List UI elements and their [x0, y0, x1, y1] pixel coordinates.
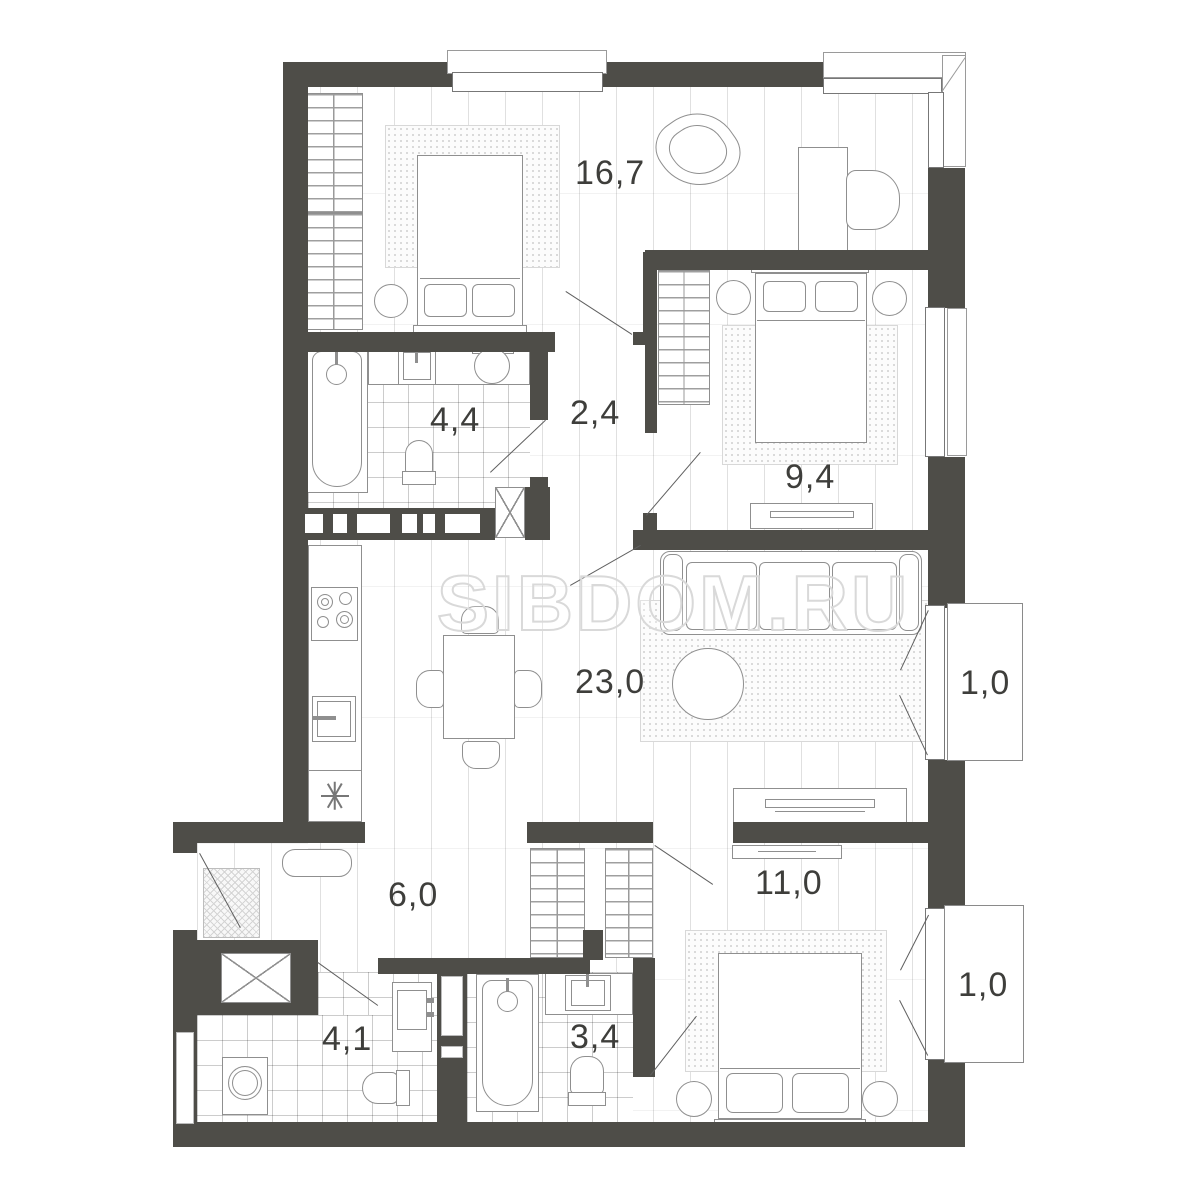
nightstand [872, 281, 907, 316]
wall-segment [633, 958, 655, 1077]
bed-pillow [792, 1073, 849, 1113]
vanity-faucet [426, 1012, 434, 1017]
kitchen-faucet [312, 716, 336, 720]
dining-chair [462, 741, 500, 769]
wardrobe [605, 848, 653, 958]
wall-segment [733, 822, 928, 843]
wardrobe [305, 213, 363, 330]
basin [474, 348, 510, 384]
wardrobe [530, 848, 585, 958]
bed-duvet-line [420, 278, 520, 279]
room-area-label: 23,0 [575, 665, 645, 699]
bathtub-faucet [497, 991, 518, 1012]
room-area-label: 4,1 [322, 1022, 372, 1056]
duct-inset [445, 514, 480, 533]
wall-segment [600, 62, 823, 87]
duct-inset [305, 514, 323, 533]
wall-niche [176, 1032, 194, 1124]
watermark: SIBDOM.RU [437, 558, 910, 649]
wall-segment [173, 822, 197, 853]
room-area-label: 1,0 [960, 666, 1010, 700]
nightstand [862, 1081, 898, 1117]
room-area-label: 3,4 [570, 1020, 620, 1054]
bed-duvet-line [720, 1068, 860, 1069]
room-area-label: 16,7 [575, 156, 645, 190]
stove-burner [339, 592, 352, 605]
nightstand [676, 1081, 712, 1117]
stove-burner [336, 611, 353, 628]
wall-segment [173, 1122, 965, 1147]
balcony-door [925, 908, 945, 1060]
wall-segment [633, 530, 928, 550]
toilet-bowl [362, 1072, 398, 1104]
dining-chair [416, 670, 444, 708]
wall-segment [928, 760, 965, 912]
tv-console-detail [765, 799, 875, 808]
tv-console-line [775, 811, 865, 812]
nightstand [716, 280, 751, 315]
vanity-faucet [426, 998, 434, 1003]
wall-segment [527, 822, 653, 843]
bed-pillow [726, 1073, 783, 1113]
coffee-table [672, 648, 744, 720]
toilet-tank [396, 1070, 410, 1106]
wall-segment [283, 62, 455, 87]
bed-pillow [472, 284, 515, 317]
desk [798, 147, 848, 253]
wall-segment [928, 168, 965, 308]
fridge-snowflake-icon [321, 782, 349, 810]
wardrobe [658, 270, 710, 405]
wall-segment [645, 345, 657, 433]
wall-segment [583, 930, 603, 960]
ventilation-shaft [221, 953, 291, 1003]
wall-segment [645, 250, 928, 270]
wall-segment [530, 345, 548, 420]
toilet-bowl [405, 440, 433, 474]
duct-inset [333, 514, 347, 533]
desk-chair [846, 170, 900, 230]
stove-burner [317, 616, 329, 628]
dresser-line [758, 851, 816, 852]
room-area-label: 6,0 [388, 878, 438, 912]
toilet-tank [402, 471, 436, 485]
sink-faucet [586, 973, 589, 987]
wall-niche [441, 1046, 463, 1058]
wardrobe [305, 93, 363, 213]
wall-segment [378, 958, 590, 974]
bed-pillow [815, 281, 858, 312]
duct-inset [402, 514, 417, 533]
bench [282, 849, 352, 877]
dresser [732, 845, 842, 859]
tv-console-detail [770, 511, 854, 518]
wall-niche [441, 976, 463, 1036]
stove-burner [317, 594, 333, 610]
window-sill [447, 50, 607, 74]
bed-duvet-line [757, 320, 865, 321]
room-area-label: 4,4 [430, 403, 480, 437]
duct-inset [423, 514, 435, 533]
room-area-label: 9,4 [785, 460, 835, 494]
wall-segment [525, 487, 550, 540]
dining-table [443, 635, 515, 739]
bathtub-faucet [326, 364, 347, 385]
window-sill [947, 308, 967, 456]
bed-pillow [424, 284, 467, 317]
window [452, 72, 603, 92]
toilet-bowl [570, 1056, 604, 1094]
wall-segment [308, 332, 555, 352]
room-area-label: 1,0 [958, 968, 1008, 1002]
bed-pillow [763, 281, 806, 312]
vanity-sink [397, 990, 427, 1030]
room-area-label: 11,0 [755, 866, 823, 900]
dining-chair [514, 670, 542, 708]
wall-segment [283, 62, 308, 843]
stool [374, 284, 408, 318]
floor-plan: 16,7 2,4 4,4 9,4 23,0 1,0 6,0 11,0 1,0 4… [0, 0, 1200, 1200]
corner-window [928, 92, 944, 168]
wall-segment [928, 457, 965, 608]
doormat [203, 868, 260, 938]
corner-window [823, 78, 942, 94]
wall-segment [197, 822, 365, 843]
balcony-door [925, 605, 945, 760]
toilet-tank [568, 1092, 606, 1106]
window [925, 307, 945, 457]
duct-inset [357, 514, 390, 533]
ventilation-shaft [495, 487, 525, 538]
washing-machine-drum [228, 1066, 262, 1100]
room-area-label: 2,4 [570, 396, 620, 430]
